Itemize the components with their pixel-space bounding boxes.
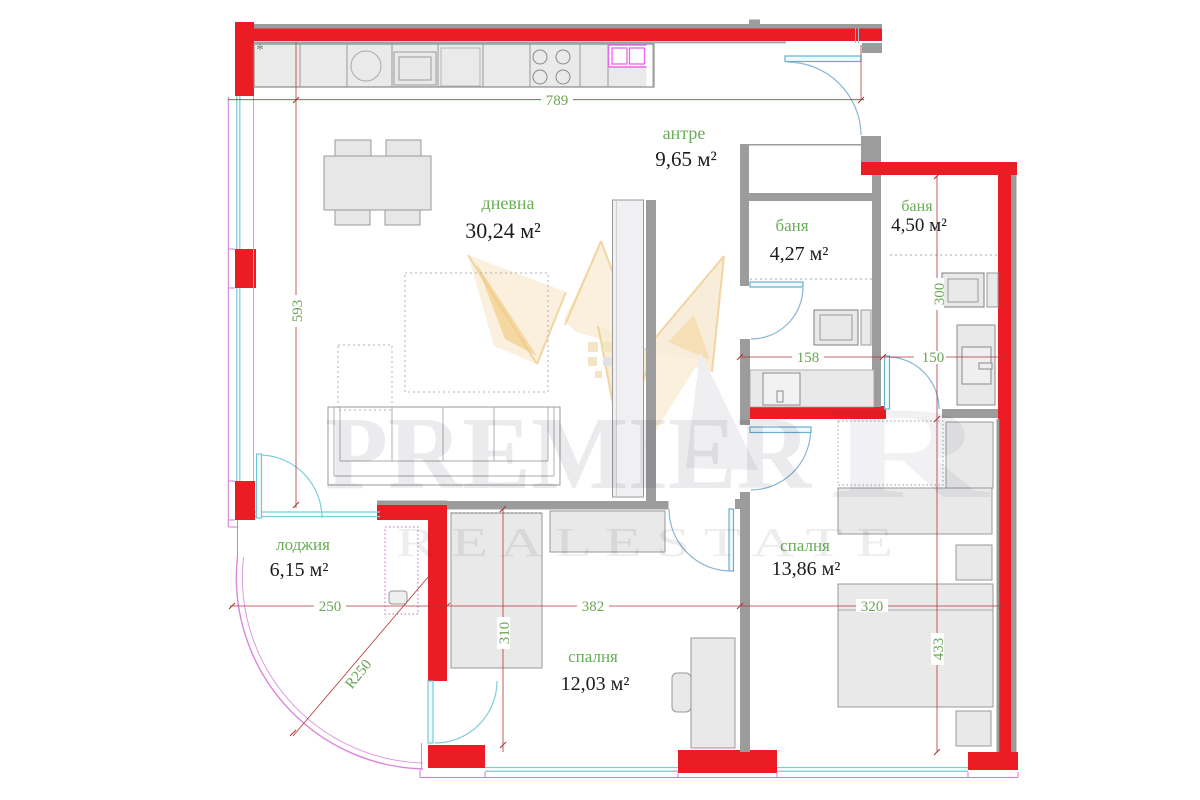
svg-text:250: 250 <box>319 599 342 615</box>
svg-text:PREMIER: PREMIER <box>325 396 813 511</box>
svg-text:300: 300 <box>932 283 948 306</box>
svg-text:антре: антре <box>663 123 706 143</box>
svg-text:лоджия: лоджия <box>276 535 330 554</box>
svg-text:310: 310 <box>497 622 513 645</box>
svg-text:4,27 м²: 4,27 м² <box>770 243 829 265</box>
svg-text:R E A L E S T A T E: R E A L E S T A T E <box>396 519 893 565</box>
svg-text:6,15 м²: 6,15 м² <box>270 559 329 581</box>
svg-text:433: 433 <box>931 638 947 661</box>
svg-text:12,03 м²: 12,03 м² <box>561 673 630 695</box>
svg-text:баня: баня <box>901 198 933 215</box>
svg-text:дневна: дневна <box>482 193 535 213</box>
svg-text:9,65 м²: 9,65 м² <box>655 147 717 171</box>
svg-text:баня: баня <box>775 216 808 235</box>
svg-text:спалня: спалня <box>568 647 618 666</box>
svg-text:30,24 м²: 30,24 м² <box>465 218 541 243</box>
svg-text:158: 158 <box>797 350 820 366</box>
svg-text:*: * <box>256 42 264 58</box>
svg-text:593: 593 <box>290 300 306 323</box>
svg-text:382: 382 <box>582 599 605 615</box>
svg-text:789: 789 <box>546 93 569 109</box>
svg-text:R: R <box>828 379 991 526</box>
svg-text:320: 320 <box>861 599 884 615</box>
svg-text:150: 150 <box>922 350 945 366</box>
svg-text:4,50 м²: 4,50 м² <box>891 215 947 236</box>
